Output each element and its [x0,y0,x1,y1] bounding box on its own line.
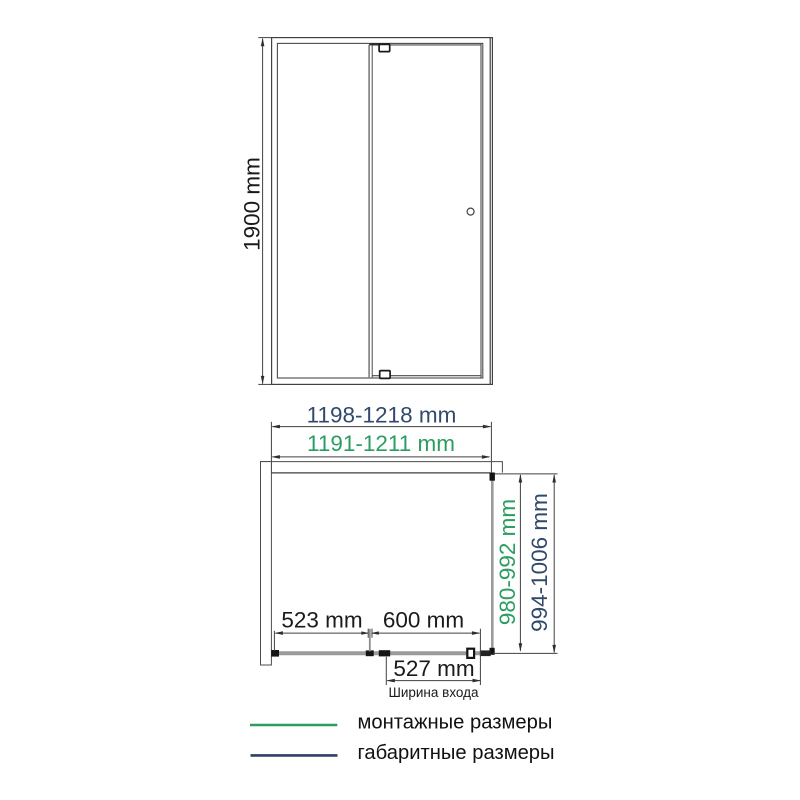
svg-text:1900 mm: 1900 mm [239,157,264,251]
svg-text:600 mm: 600 mm [383,608,464,633]
svg-text:1191-1211 mm: 1191-1211 mm [307,431,455,456]
svg-text:габаритные размеры: габаритные размеры [358,742,555,764]
svg-text:523 mm: 523 mm [281,608,362,633]
svg-text:1198-1218 mm: 1198-1218 mm [307,403,457,428]
svg-text:Ширина входа: Ширина входа [388,685,479,700]
svg-text:монтажные размеры: монтажные размеры [358,712,553,734]
svg-text:527 mm: 527 mm [393,656,474,681]
svg-text:980-992 mm: 980-992 mm [495,499,520,625]
svg-text:994-1006 mm: 994-1006 mm [527,493,552,632]
